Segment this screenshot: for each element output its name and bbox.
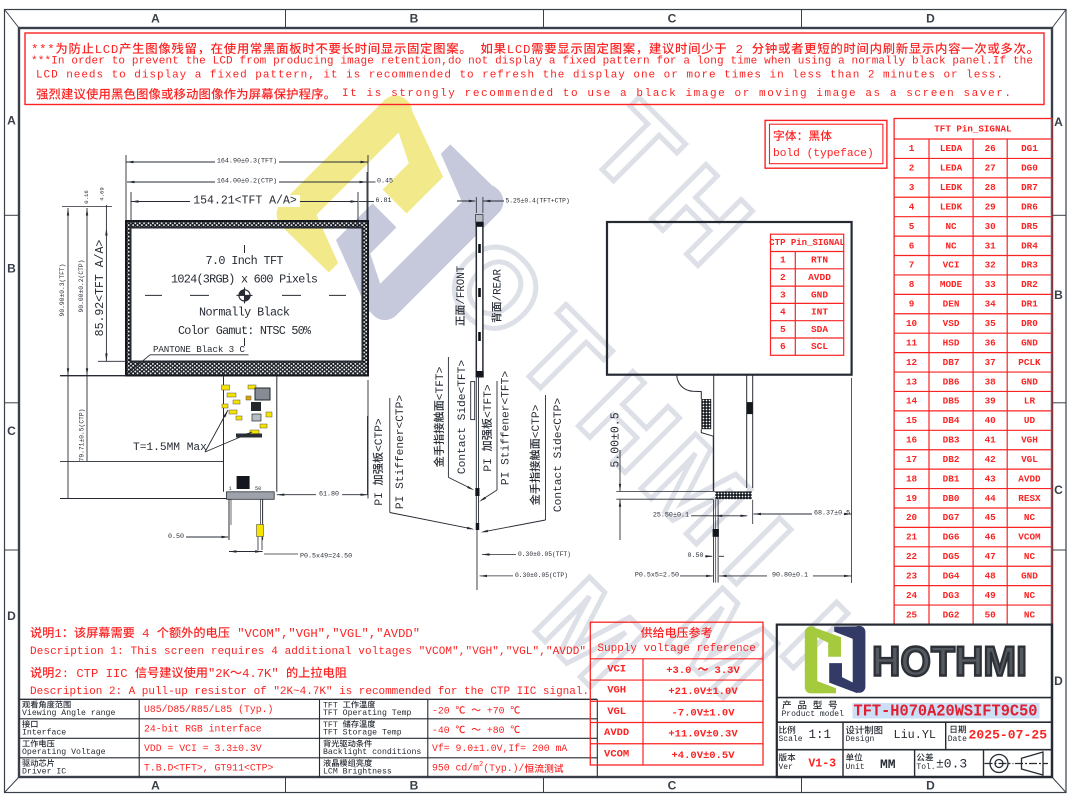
svg-text:11: 11 bbox=[906, 337, 918, 348]
svg-text:AVDD: AVDD bbox=[604, 727, 629, 739]
svg-text:Liu.YL: Liu.YL bbox=[894, 728, 936, 742]
svg-text:D: D bbox=[7, 609, 16, 623]
svg-text:Viewing Angle range: Viewing Angle range bbox=[22, 708, 115, 718]
svg-text:LR: LR bbox=[1024, 396, 1036, 407]
svg-text:35: 35 bbox=[985, 318, 997, 329]
svg-text:D: D bbox=[926, 779, 935, 793]
svg-text:47: 47 bbox=[985, 551, 996, 562]
svg-text:A: A bbox=[7, 114, 16, 128]
svg-text:供给电压参考: 供给电压参考 bbox=[641, 624, 713, 641]
svg-text:TFT Operating Temp: TFT Operating Temp bbox=[323, 708, 412, 718]
svg-text:28: 28 bbox=[985, 182, 997, 193]
svg-text:26: 26 bbox=[985, 143, 997, 154]
svg-text:164.00±0.2(CTP): 164.00±0.2(CTP) bbox=[217, 178, 277, 186]
svg-text:HOTHMI: HOTHMI bbox=[872, 638, 1027, 685]
svg-text:5.25±0.4(TFT+CTP): 5.25±0.4(TFT+CTP) bbox=[506, 198, 570, 205]
svg-text:7.0 Inch TFT: 7.0 Inch TFT bbox=[206, 254, 284, 268]
svg-text:C: C bbox=[668, 12, 677, 26]
svg-text:41: 41 bbox=[985, 435, 997, 446]
svg-text:79.71±0.5(CTP): 79.71±0.5(CTP) bbox=[79, 409, 86, 462]
svg-text:LCD needs to display a fixed p: LCD needs to display a fixed pattern, it… bbox=[36, 69, 1003, 81]
svg-text:43: 43 bbox=[985, 473, 997, 484]
svg-text:5.00±0.5: 5.00±0.5 bbox=[610, 412, 623, 467]
svg-text:HSD: HSD bbox=[943, 337, 960, 348]
svg-text:SDA: SDA bbox=[811, 324, 828, 335]
svg-text:DR2: DR2 bbox=[1021, 279, 1038, 290]
svg-text:TFT Pin_SIGNAL: TFT Pin_SIGNAL bbox=[934, 123, 1012, 134]
svg-text:10: 10 bbox=[906, 318, 918, 329]
svg-text:DG3: DG3 bbox=[943, 590, 960, 601]
svg-text:DR5: DR5 bbox=[1021, 221, 1038, 232]
svg-text:PCLK: PCLK bbox=[1018, 357, 1041, 368]
svg-text:24-bit RGB interface: 24-bit RGB interface bbox=[144, 723, 262, 734]
svg-text:VCOM: VCOM bbox=[604, 748, 629, 760]
svg-text:+11.0V±0.3V: +11.0V±0.3V bbox=[668, 726, 738, 741]
svg-text:PI 加强板<CTP>: PI 加强板<CTP> bbox=[370, 418, 386, 506]
svg-text:Design: Design bbox=[846, 735, 875, 744]
svg-text:LEDA: LEDA bbox=[940, 143, 963, 154]
svg-text:NC: NC bbox=[945, 240, 957, 251]
svg-text:0.50: 0.50 bbox=[687, 552, 703, 560]
svg-text:4: 4 bbox=[780, 307, 786, 318]
svg-text:DB5: DB5 bbox=[943, 396, 960, 407]
svg-text:6.81: 6.81 bbox=[376, 197, 392, 205]
svg-text:21: 21 bbox=[906, 532, 918, 543]
svg-text:B: B bbox=[410, 12, 419, 26]
svg-text:强烈建议使用黑色图像或移动图像作为屏幕保护程序。: 强烈建议使用黑色图像或移动图像作为屏幕保护程序。 bbox=[36, 85, 336, 103]
svg-text:AVDD: AVDD bbox=[1018, 473, 1041, 484]
svg-text:RTN: RTN bbox=[811, 255, 828, 266]
svg-text:LEDA: LEDA bbox=[940, 163, 963, 174]
svg-text:PI Stiffener<CTP>: PI Stiffener<CTP> bbox=[391, 395, 407, 509]
svg-text:GND: GND bbox=[1021, 570, 1038, 581]
svg-text:31: 31 bbox=[985, 240, 997, 251]
svg-text:16: 16 bbox=[906, 435, 918, 446]
svg-text:GND: GND bbox=[1021, 376, 1038, 387]
svg-text:单位: 单位 bbox=[846, 751, 864, 763]
svg-text:NC: NC bbox=[1024, 590, 1036, 601]
svg-text:3: 3 bbox=[909, 182, 915, 193]
svg-text:CTP Pin_SIGNAL: CTP Pin_SIGNAL bbox=[769, 238, 845, 248]
svg-text:DB6: DB6 bbox=[943, 376, 960, 387]
svg-text:44: 44 bbox=[985, 493, 997, 504]
svg-text:LCM Brightness: LCM Brightness bbox=[323, 767, 392, 777]
svg-text:DG5: DG5 bbox=[943, 551, 960, 562]
svg-text:0.16: 0.16 bbox=[83, 190, 90, 203]
svg-text:Contact Side<TFT>: Contact Side<TFT> bbox=[453, 360, 469, 474]
svg-text:Interface: Interface bbox=[22, 728, 66, 738]
svg-text:T.B.D<TFT>, GT911<CTP>: T.B.D<TFT>, GT911<CTP> bbox=[144, 762, 273, 773]
svg-text:DB0: DB0 bbox=[943, 493, 960, 504]
svg-text:DR7: DR7 bbox=[1021, 182, 1038, 193]
svg-text:12: 12 bbox=[906, 357, 918, 368]
svg-text:DB3: DB3 bbox=[943, 435, 960, 446]
svg-text:29: 29 bbox=[985, 201, 997, 212]
svg-text:23: 23 bbox=[906, 570, 918, 581]
svg-text:46: 46 bbox=[985, 532, 997, 543]
svg-text:VGL: VGL bbox=[1021, 454, 1038, 465]
svg-text:5: 5 bbox=[780, 324, 786, 335]
svg-text:NC: NC bbox=[1024, 551, 1036, 562]
svg-text:字体：黑体: 字体：黑体 bbox=[773, 127, 832, 144]
svg-text:5: 5 bbox=[909, 221, 915, 232]
svg-text:0.30±0.05(CTP): 0.30±0.05(CTP) bbox=[515, 572, 568, 579]
svg-text:背面/REAR: 背面/REAR bbox=[489, 268, 505, 323]
svg-text:4: 4 bbox=[909, 201, 915, 212]
svg-text:40: 40 bbox=[985, 415, 997, 426]
svg-text:PI Stiffener<TFT>: PI Stiffener<TFT> bbox=[497, 371, 513, 485]
svg-text:比例: 比例 bbox=[779, 724, 796, 736]
svg-text:7: 7 bbox=[909, 260, 915, 271]
svg-text:DR4: DR4 bbox=[1021, 240, 1038, 251]
svg-text:Scale: Scale bbox=[779, 735, 803, 744]
svg-text:VGH: VGH bbox=[1021, 435, 1038, 446]
svg-text:Normally Black: Normally Black bbox=[199, 306, 290, 320]
svg-text:NC: NC bbox=[945, 221, 957, 232]
svg-text:Driver IC: Driver IC bbox=[22, 767, 66, 777]
svg-text:34: 34 bbox=[985, 299, 997, 310]
svg-text:DG1: DG1 bbox=[1021, 143, 1038, 154]
svg-text:+4.0V±0.5V: +4.0V±0.5V bbox=[671, 747, 735, 762]
svg-text:VCOM: VCOM bbox=[1018, 532, 1041, 543]
svg-text:42: 42 bbox=[985, 454, 997, 465]
svg-text:DG7: DG7 bbox=[943, 512, 960, 523]
svg-text:9: 9 bbox=[909, 299, 915, 310]
svg-text:1024(3RGB) x 600 Pixels: 1024(3RGB) x 600 Pixels bbox=[171, 273, 318, 287]
svg-text:LEDK: LEDK bbox=[940, 182, 963, 193]
svg-text:U85/D85/R85/L85 (Typ.): U85/D85/R85/L85 (Typ.) bbox=[144, 704, 273, 715]
svg-text:8: 8 bbox=[909, 279, 915, 290]
svg-text:2: 2 bbox=[780, 272, 786, 283]
svg-text:Color Gamut: NTSC 50%: Color Gamut: NTSC 50% bbox=[178, 324, 312, 338]
svg-text:6: 6 bbox=[909, 240, 915, 251]
svg-text:TFT Storage Temp: TFT Storage Temp bbox=[323, 729, 402, 738]
svg-text:DB7: DB7 bbox=[943, 357, 960, 368]
svg-text:DG2: DG2 bbox=[943, 609, 960, 620]
svg-text:说明2: CTP IIC 信号建议使用"2K～4.7K" 的: 说明2: CTP IIC 信号建议使用"2K～4.7K" 的上拉电阻 bbox=[30, 663, 347, 681]
svg-text:Vf= 9.0±1.0V,If= 200 mA: Vf= 9.0±1.0V,If= 200 mA bbox=[432, 743, 567, 754]
svg-text:SCL: SCL bbox=[811, 341, 828, 352]
svg-text:+3.0 ～ 3.3V: +3.0 ～ 3.3V bbox=[666, 662, 740, 677]
svg-text:0.30±0.05(TFT): 0.30±0.05(TFT) bbox=[518, 551, 571, 558]
svg-text:金手指接触面<TFT>: 金手指接触面<TFT> bbox=[431, 366, 447, 467]
svg-text:50: 50 bbox=[985, 609, 997, 620]
svg-text:LEDK: LEDK bbox=[940, 201, 963, 212]
svg-text:VCI: VCI bbox=[943, 260, 960, 271]
svg-text:37: 37 bbox=[985, 357, 996, 368]
svg-text:C: C bbox=[668, 779, 677, 793]
svg-text:48: 48 bbox=[985, 570, 997, 581]
svg-text:Date: Date bbox=[948, 735, 967, 744]
svg-text:14: 14 bbox=[906, 396, 918, 407]
svg-text:DR3: DR3 bbox=[1021, 260, 1038, 271]
svg-text:Product model: Product model bbox=[782, 710, 845, 719]
svg-text:D: D bbox=[1054, 674, 1063, 688]
svg-text:GND: GND bbox=[811, 289, 828, 300]
svg-text:30: 30 bbox=[985, 221, 997, 232]
svg-text:DG0: DG0 bbox=[1021, 163, 1038, 174]
svg-text:Contact Side<CTP>: Contact Side<CTP> bbox=[549, 398, 565, 512]
svg-text:Backlight conditions: Backlight conditions bbox=[323, 747, 421, 757]
svg-text:AVDD: AVDD bbox=[808, 272, 831, 283]
svg-text:22: 22 bbox=[906, 551, 918, 562]
svg-text:UD: UD bbox=[1024, 415, 1036, 426]
svg-text:DR1: DR1 bbox=[1021, 299, 1038, 310]
svg-text:Description 2: A pull-up resis: Description 2: A pull-up resistor of "2K… bbox=[30, 686, 589, 698]
svg-text:25.50±0.1: 25.50±0.1 bbox=[653, 512, 689, 520]
svg-text:bold (typeface): bold (typeface) bbox=[773, 148, 874, 160]
svg-text:VGH: VGH bbox=[607, 685, 626, 697]
svg-text:MODE: MODE bbox=[940, 279, 963, 290]
svg-text:-7.0V±1.0V: -7.0V±1.0V bbox=[671, 704, 735, 719]
svg-text:说明1：该屏幕需要 4 个额外的电压 "VCOM","VGH: 说明1：该屏幕需要 4 个额外的电压 "VCOM","VGH","VGL","A… bbox=[30, 623, 420, 641]
svg-text:NC: NC bbox=[1024, 512, 1036, 523]
svg-text:VDD = VCI = 3.3±0.3V: VDD = VCI = 3.3±0.3V bbox=[144, 743, 262, 754]
svg-text:85.92<TFT A/A>: 85.92<TFT A/A> bbox=[94, 240, 107, 337]
svg-text:C: C bbox=[1054, 483, 1063, 497]
svg-text:DG6: DG6 bbox=[943, 532, 960, 543]
svg-text:PI 加强板<TFT>: PI 加强板<TFT> bbox=[479, 384, 495, 472]
svg-text:-40 ℃ ～ +80 ℃: -40 ℃ ～ +80 ℃ bbox=[432, 722, 520, 736]
svg-text:2: 2 bbox=[909, 163, 915, 174]
svg-text:P0.5x49=24.50: P0.5x49=24.50 bbox=[300, 553, 352, 561]
svg-text:19: 19 bbox=[906, 493, 918, 504]
svg-text:Ver: Ver bbox=[779, 763, 794, 772]
svg-text:39: 39 bbox=[985, 396, 997, 407]
svg-text:DG4: DG4 bbox=[943, 570, 960, 581]
svg-text:日期: 日期 bbox=[949, 723, 967, 735]
svg-text:90.80±0.1: 90.80±0.1 bbox=[772, 572, 808, 580]
svg-text:24: 24 bbox=[906, 590, 918, 601]
svg-text:-20 ℃ ～ +70 ℃: -20 ℃ ～ +70 ℃ bbox=[432, 702, 520, 716]
svg-text:1:1: 1:1 bbox=[809, 728, 832, 742]
svg-text:+21.0V±1.0V: +21.0V±1.0V bbox=[668, 683, 738, 698]
svg-text:Description 1: This screen req: Description 1: This screen requires 4 ad… bbox=[30, 646, 586, 658]
svg-text:金手指接触面<CTP>: 金手指接触面<CTP> bbox=[527, 404, 543, 505]
svg-text:INT: INT bbox=[811, 307, 828, 318]
svg-text:32: 32 bbox=[985, 260, 997, 271]
svg-text:DB2: DB2 bbox=[943, 454, 960, 465]
svg-text:NC: NC bbox=[1024, 609, 1036, 620]
svg-text:DR6: DR6 bbox=[1021, 201, 1038, 212]
svg-text:2025-07-25: 2025-07-25 bbox=[969, 727, 1048, 742]
svg-text:V1-3: V1-3 bbox=[808, 758, 836, 771]
svg-text:17: 17 bbox=[906, 454, 917, 465]
svg-text:50: 50 bbox=[255, 486, 261, 492]
svg-text:VGL: VGL bbox=[607, 706, 626, 718]
svg-text:18: 18 bbox=[906, 473, 918, 484]
svg-text:It is strongly recommended to: It is strongly recommended to use a blac… bbox=[342, 88, 1011, 100]
svg-text:49: 49 bbox=[985, 590, 997, 601]
svg-text:MM: MM bbox=[880, 757, 896, 772]
svg-text:27: 27 bbox=[985, 163, 996, 174]
svg-text:25: 25 bbox=[906, 609, 918, 620]
svg-text:1: 1 bbox=[229, 486, 232, 492]
svg-text:TFT-H070A20WSIFT9C50: TFT-H070A20WSIFT9C50 bbox=[854, 702, 1038, 721]
svg-text:6: 6 bbox=[780, 341, 786, 352]
svg-text:36: 36 bbox=[985, 337, 997, 348]
svg-text:VCI: VCI bbox=[607, 663, 626, 675]
svg-text:P0.5x5=2.50: P0.5x5=2.50 bbox=[635, 572, 679, 580]
svg-text:A: A bbox=[151, 12, 160, 26]
svg-text:正面/FRONT: 正面/FRONT bbox=[452, 265, 468, 326]
svg-text:61.80: 61.80 bbox=[319, 490, 339, 498]
svg-text:13: 13 bbox=[906, 376, 918, 387]
svg-text:B: B bbox=[7, 262, 16, 276]
svg-text:B: B bbox=[1054, 288, 1063, 302]
svg-text:***In order to prevent the LCD: ***In order to prevent the LCD from prod… bbox=[31, 56, 1033, 68]
svg-text:公差: 公差 bbox=[916, 751, 934, 763]
svg-text:154.21<TFT A/A>: 154.21<TFT A/A> bbox=[193, 195, 297, 208]
svg-text:版本: 版本 bbox=[779, 751, 797, 763]
svg-text:D: D bbox=[926, 12, 935, 26]
svg-text:DB4: DB4 bbox=[943, 415, 960, 426]
svg-text:0.45: 0.45 bbox=[377, 178, 393, 186]
svg-text:1: 1 bbox=[780, 255, 786, 266]
svg-text:B: B bbox=[410, 779, 419, 793]
svg-text:20: 20 bbox=[906, 512, 918, 523]
svg-text:A: A bbox=[1054, 115, 1063, 129]
svg-text:T=1.5MM Max: T=1.5MM Max bbox=[133, 442, 207, 454]
svg-text:±0.3: ±0.3 bbox=[936, 757, 967, 772]
svg-text:1: 1 bbox=[909, 143, 915, 154]
svg-text:GND: GND bbox=[1021, 337, 1038, 348]
svg-text:A: A bbox=[151, 779, 160, 793]
svg-text:DB1: DB1 bbox=[943, 473, 960, 484]
svg-text:DR0: DR0 bbox=[1021, 318, 1038, 329]
svg-text:DEN: DEN bbox=[943, 299, 960, 310]
svg-text:Operating Voltage: Operating Voltage bbox=[22, 747, 106, 757]
svg-text:Unit: Unit bbox=[846, 763, 865, 772]
svg-text:45: 45 bbox=[985, 512, 997, 523]
svg-text:RESX: RESX bbox=[1018, 493, 1041, 504]
svg-text:90.90±0.3(TFT): 90.90±0.3(TFT) bbox=[59, 264, 66, 317]
svg-text:PANTONE Black 3 C: PANTONE Black 3 C bbox=[153, 344, 245, 355]
svg-text:VSD: VSD bbox=[943, 318, 960, 329]
svg-text:0.50: 0.50 bbox=[168, 533, 184, 541]
svg-text:4.69: 4.69 bbox=[99, 187, 106, 200]
svg-text:33: 33 bbox=[985, 279, 997, 290]
svg-text:C: C bbox=[7, 424, 16, 438]
svg-text:164.90±0.3(TFT): 164.90±0.3(TFT) bbox=[217, 158, 277, 166]
svg-text:38: 38 bbox=[985, 376, 997, 387]
svg-text:3: 3 bbox=[780, 289, 786, 300]
svg-text:15: 15 bbox=[906, 415, 918, 426]
svg-text:Supply voltage reference: Supply voltage reference bbox=[597, 643, 755, 655]
svg-text:***为防止LCD产生图像残留，在使用常黑面板时不要长时间显: ***为防止LCD产生图像残留，在使用常黑面板时不要长时间显示固定图案。 如果L… bbox=[31, 39, 1039, 57]
svg-text:90.00±0.2(CTP): 90.00±0.2(CTP) bbox=[78, 260, 85, 313]
svg-text:Tol.: Tol. bbox=[916, 763, 935, 772]
svg-text:950 cd/m2(Typ.)/恒流测试: 950 cd/m2(Typ.)/恒流测试 bbox=[432, 761, 564, 775]
